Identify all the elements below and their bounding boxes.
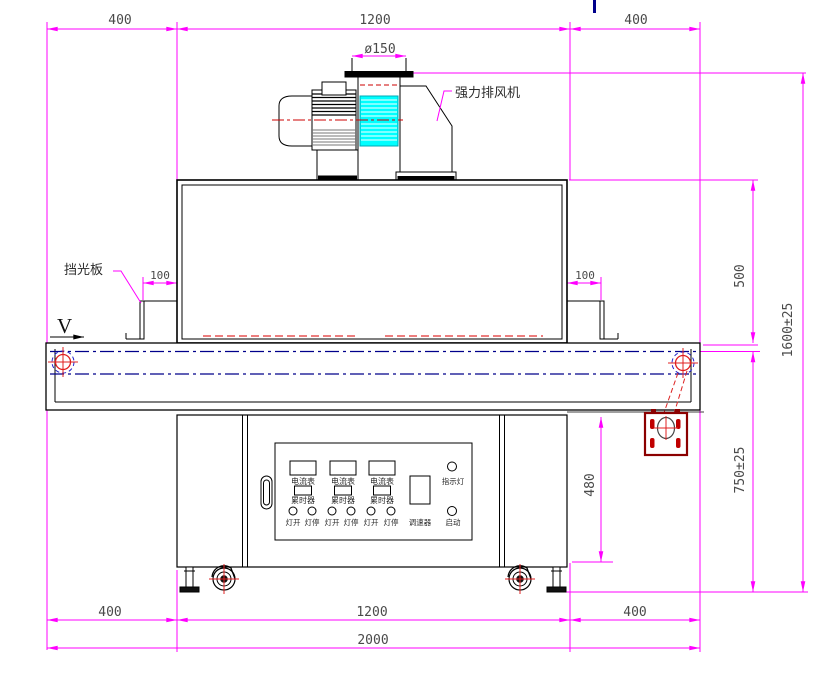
label-speed-controller: 调速器 [409,518,432,527]
fan-motor [279,82,358,180]
label-lamp-off-2: 灯停 [344,517,359,527]
stray-blue-mark [593,0,596,13]
label-direction-v: V [57,314,72,338]
door-handle [261,476,272,509]
label-lamp-off-1: 灯停 [305,517,320,527]
oven-box [177,180,567,343]
label-ammeter-2: 电流表 [331,476,355,486]
label-timer-1: 累时器 [291,495,315,505]
caster-right [505,564,535,594]
dim-bottom-middle: 1200 [356,605,387,620]
label-lamp-on-2: 灯开 [325,517,340,527]
label-indicator-lamp: 指示灯 [442,476,465,486]
label-ammeter-3: 电流表 [370,476,394,486]
label-exhaust-fan: 强力排风机 [455,85,520,100]
dim-1600: 1600±25 [781,303,796,358]
label-start: 启动 [446,517,461,527]
dim-top-left: 400 [108,13,131,28]
engineering-drawing-canvas: 400 1200 400 ø150 100 100 500 1600±25 75… [0,0,835,675]
fan-housing [396,86,456,180]
dim-bottom-left: 400 [98,605,121,620]
fan-impeller [360,96,398,146]
dim-duct-diameter: ø150 [364,42,395,57]
dim-100-right: 100 [575,269,595,282]
dim-480: 480 [583,473,598,496]
dim-750: 750±25 [733,447,748,494]
leveling-foot-right [547,567,566,592]
dim-top-right: 400 [624,13,647,28]
label-lamp-on-1: 灯开 [286,517,301,527]
dim-top-middle: 1200 [359,13,390,28]
dim-total: 2000 [357,633,388,648]
leveling-foot-left [180,567,199,592]
label-lamp-on-3: 灯开 [364,517,379,527]
light-shield-left [126,301,177,339]
conveyor [46,343,700,410]
caster-left [209,564,239,594]
exhaust-fan-assembly [272,58,456,180]
label-ammeter-1: 电流表 [291,476,315,486]
motor-fins [312,94,356,115]
label-timer-2: 累时器 [331,495,355,505]
label-light-shield: 挡光板 [64,262,103,277]
duct-flange [345,72,413,78]
dim-500: 500 [733,264,748,287]
motor-junction-box [322,82,346,95]
label-timer-3: 累时器 [370,495,394,505]
label-lamp-off-3: 灯停 [384,517,399,527]
light-shield-leader [113,271,141,303]
dim-100-left: 100 [150,269,170,282]
light-shield-right [567,301,618,339]
dim-bottom-right: 400 [623,605,646,620]
